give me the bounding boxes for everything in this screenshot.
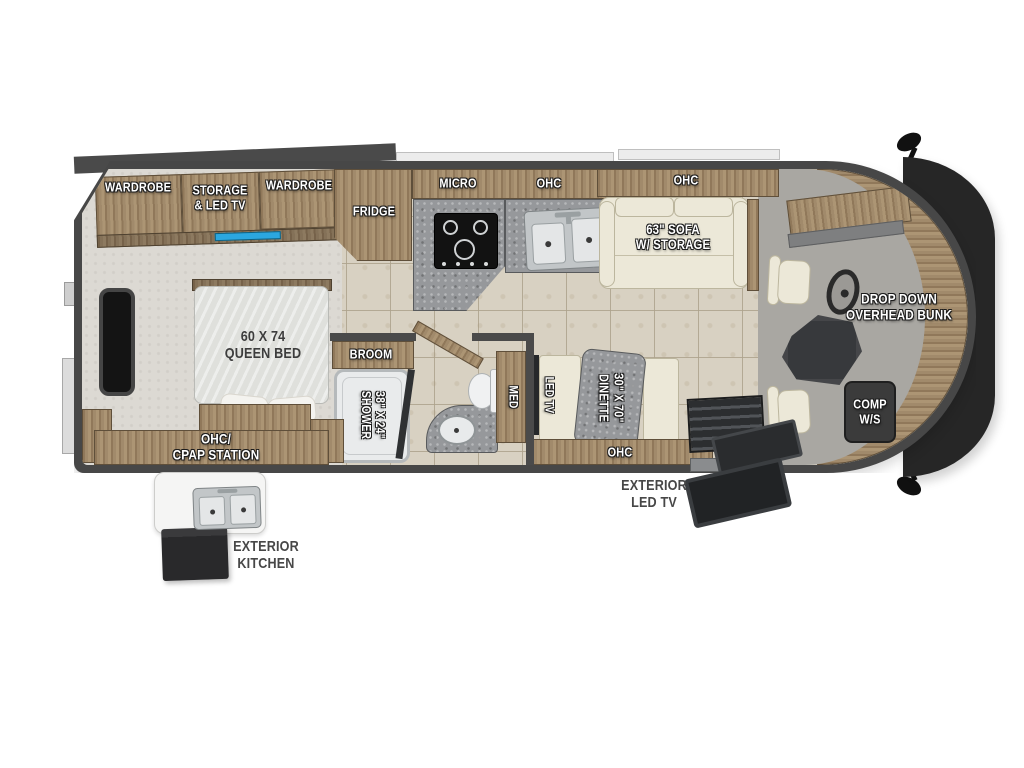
label-led-tv: LED TV [542,377,555,414]
passenger-seat [767,251,814,311]
bath-sink-icon [438,415,476,445]
label-sofa: 63" SOFA W/ STORAGE [636,222,711,252]
label-drop-down-bunk: DROP DOWN OVERHEAD BUNK [846,291,952,322]
sofa-end-pillar [747,199,759,291]
label-ohc-cpap: OHC/ CPAP STATION [173,431,260,462]
label-storage-led-tv: STORAGE & LED TV [193,183,248,212]
label-ohc-kitchen: OHC [537,177,562,192]
label-shower: 38" X 24" SHOWER [359,391,387,439]
awning-bar [618,149,780,160]
label-ohc-dinette: OHC [608,446,633,461]
cooktop-icon [434,213,498,269]
exterior-sink-icon [192,486,261,530]
dinette-bench [643,358,679,444]
window-icon [99,288,135,396]
bathroom-wall [330,333,416,341]
rv-interior [82,169,968,465]
label-micro: MICRO [439,177,476,192]
label-queen-bed: 60 X 74 QUEEN BED [225,329,301,363]
label-exterior-kitchen: EXTERIOR KITCHEN [233,539,299,573]
label-med: MED [506,386,519,409]
bathroom-wall [526,333,534,465]
label-wardrobe-right: WARDROBE [266,179,332,194]
label-dinette: 30" X 70" DINETTE [596,373,625,423]
label-ohc-sofa: OHC [674,174,699,189]
rv-floorplan-canvas: WARDROBE STORAGE & LED TV WARDROBE FRIDG… [0,0,1024,768]
bathroom-door [412,321,484,369]
label-wardrobe-left: WARDROBE [105,181,171,196]
label-comp-ws: COMP W/S [853,397,886,426]
label-fridge: FRIDGE [353,205,395,220]
side-mirror-icon [894,129,924,155]
exterior-kitchen-box [161,527,229,581]
label-broom: BROOM [350,348,393,363]
bed-base [199,404,311,432]
label-exterior-led-tv: EXTERIOR LED TV [621,478,687,512]
bathroom-wall [472,333,534,341]
